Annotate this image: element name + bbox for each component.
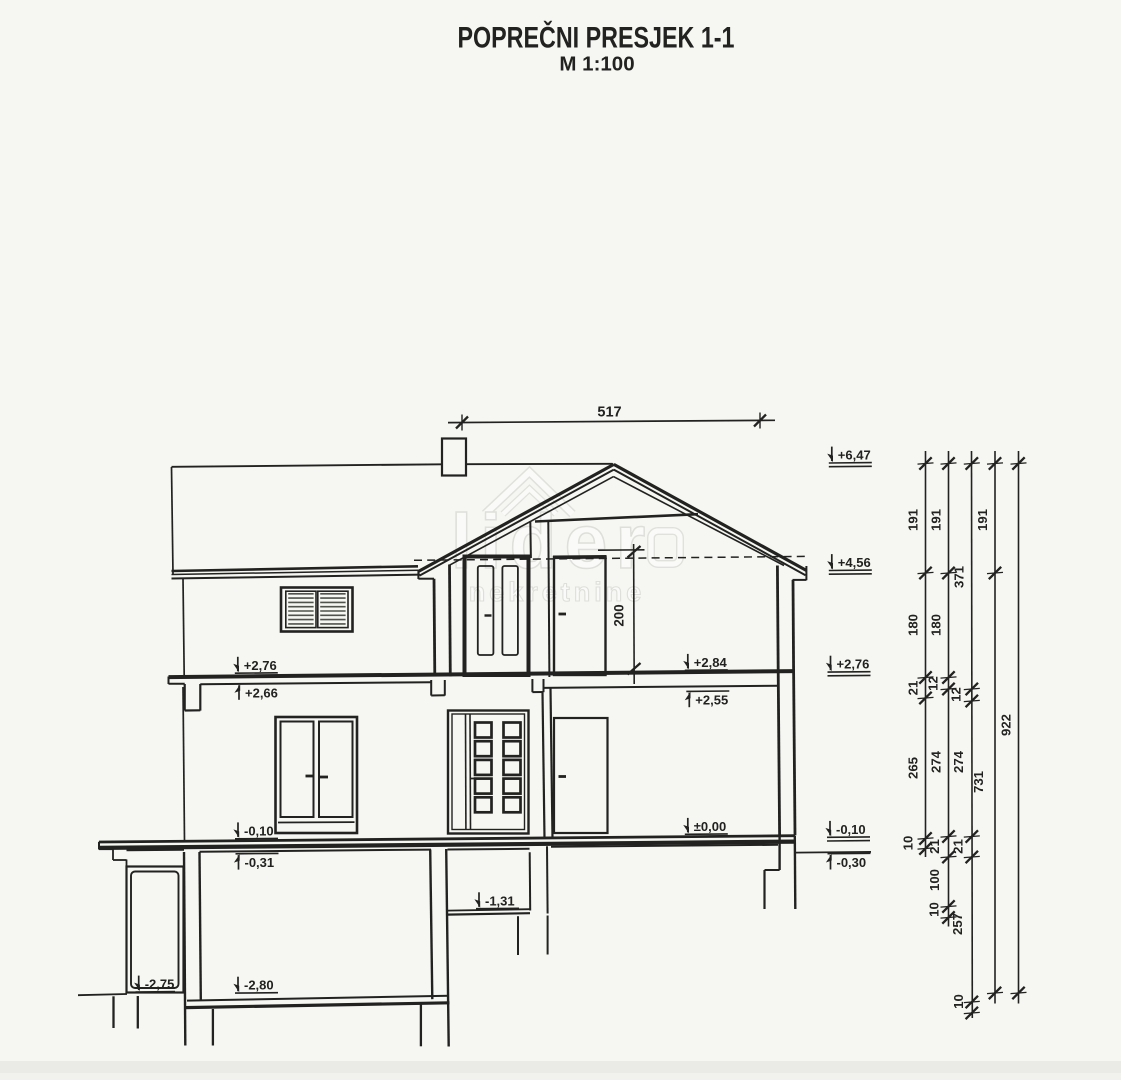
svg-text:371: 371 <box>952 566 967 588</box>
svg-text:21: 21 <box>906 681 921 696</box>
svg-text:+2,84: +2,84 <box>694 655 728 670</box>
svg-text:-0,31: -0,31 <box>245 855 275 870</box>
svg-text:+2,66: +2,66 <box>245 685 278 700</box>
svg-text:922: 922 <box>999 714 1014 736</box>
svg-text:10: 10 <box>951 994 966 1009</box>
svg-text:12: 12 <box>926 676 941 691</box>
svg-text:21: 21 <box>951 839 966 854</box>
svg-text:+2,55: +2,55 <box>695 693 728 708</box>
svg-text:731: 731 <box>971 771 986 793</box>
svg-text:100: 100 <box>927 869 942 891</box>
svg-text:+4,56: +4,56 <box>838 555 871 570</box>
svg-text:191: 191 <box>929 509 944 531</box>
svg-text:180: 180 <box>906 614 921 636</box>
svg-text:274: 274 <box>929 750 944 773</box>
svg-text:10: 10 <box>927 902 942 917</box>
svg-text:180: 180 <box>929 614 944 636</box>
svg-text:257: 257 <box>950 913 965 935</box>
svg-text:+6,47: +6,47 <box>838 448 871 463</box>
svg-text:M 1:100: M 1:100 <box>559 53 634 76</box>
svg-text:517: 517 <box>597 405 621 421</box>
svg-text:265: 265 <box>906 757 921 779</box>
svg-text:191: 191 <box>906 509 921 531</box>
svg-text:-0,30: -0,30 <box>837 855 867 870</box>
svg-text:POPREČNI PRESJEK 1-1: POPREČNI PRESJEK 1-1 <box>458 21 735 55</box>
svg-text:12: 12 <box>949 687 964 702</box>
svg-text:200: 200 <box>612 604 627 626</box>
svg-text:+2,76: +2,76 <box>244 658 277 673</box>
svg-text:21: 21 <box>927 839 942 854</box>
svg-text:-2,80: -2,80 <box>244 978 274 993</box>
svg-text:+2,76: +2,76 <box>837 657 870 672</box>
svg-text:191: 191 <box>975 509 990 531</box>
svg-text:nekretnine: nekretnine <box>469 577 646 607</box>
svg-text:-2,75: -2,75 <box>145 977 175 992</box>
svg-text:±0,00: ±0,00 <box>694 819 726 834</box>
svg-text:274: 274 <box>951 750 966 773</box>
svg-text:10: 10 <box>901 836 916 851</box>
svg-text:-0,10: -0,10 <box>244 823 274 838</box>
svg-text:-1,31: -1,31 <box>485 893 515 908</box>
svg-text:-0,10: -0,10 <box>836 822 866 837</box>
